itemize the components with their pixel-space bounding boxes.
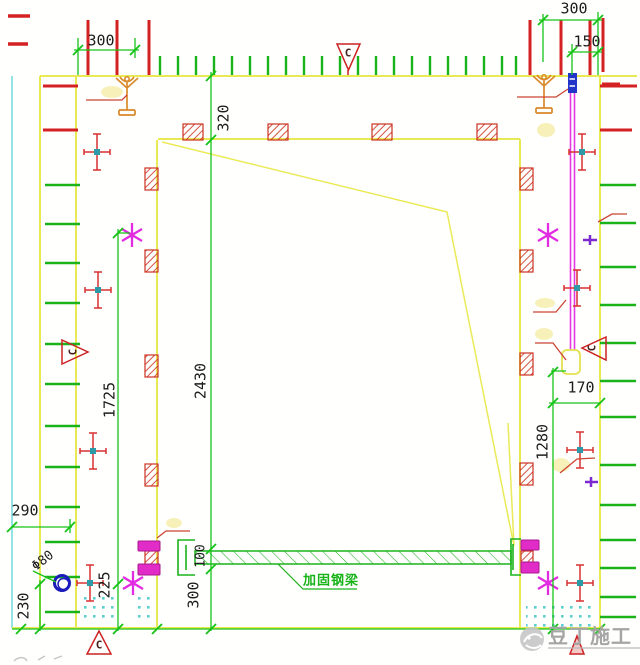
leader-lines [86, 89, 627, 538]
cad-linework [0, 0, 640, 665]
dim-opening-height: 2430 [194, 363, 209, 399]
concrete-dot-zones [84, 597, 592, 627]
dim-top-left-width: 300 [87, 34, 114, 49]
tie-rod [562, 73, 580, 374]
dim-top-right-inset: 150 [573, 35, 600, 50]
dim-right-lower-height: 1280 [536, 424, 551, 460]
right-rebar-bars [600, 185, 636, 617]
dim-left-upper-height: 1725 [103, 382, 118, 418]
beam-annotation: 加固钢梁 [303, 575, 359, 588]
cutoff-text-marks [14, 656, 62, 661]
dim-beam-depth: 100 [195, 544, 208, 567]
dimension-ticks [7, 15, 605, 634]
dim-top-right-width: 300 [560, 2, 587, 17]
dim-left-margin: 290 [11, 504, 38, 519]
cad-drawing-canvas: 300 300 150 320 2430 1725 1280 170 290 2… [0, 0, 640, 665]
section-mark-top: C [345, 48, 352, 59]
top-rebar-ticks [160, 56, 516, 75]
prop-symbol-right [533, 75, 555, 113]
dim-lintel-height: 320 [217, 104, 232, 131]
section-mark-bottom: C [96, 640, 103, 651]
wall-outline [12, 76, 637, 628]
watermark-text: 豆丁施工 [548, 626, 632, 646]
highlight-blobs [101, 86, 570, 528]
section-mark-right: C [587, 345, 598, 352]
section-mark-left: C [68, 349, 79, 356]
bolt-marks [583, 235, 598, 487]
dim-anchor-offset: 170 [567, 381, 594, 396]
left-rebar-bars [45, 185, 80, 612]
dim-anchor-below: 230 [17, 592, 32, 619]
dim-anchor-above: 225 [98, 571, 113, 598]
diagonal-brace [162, 142, 514, 546]
dim-beam-to-base: 300 [187, 581, 202, 608]
